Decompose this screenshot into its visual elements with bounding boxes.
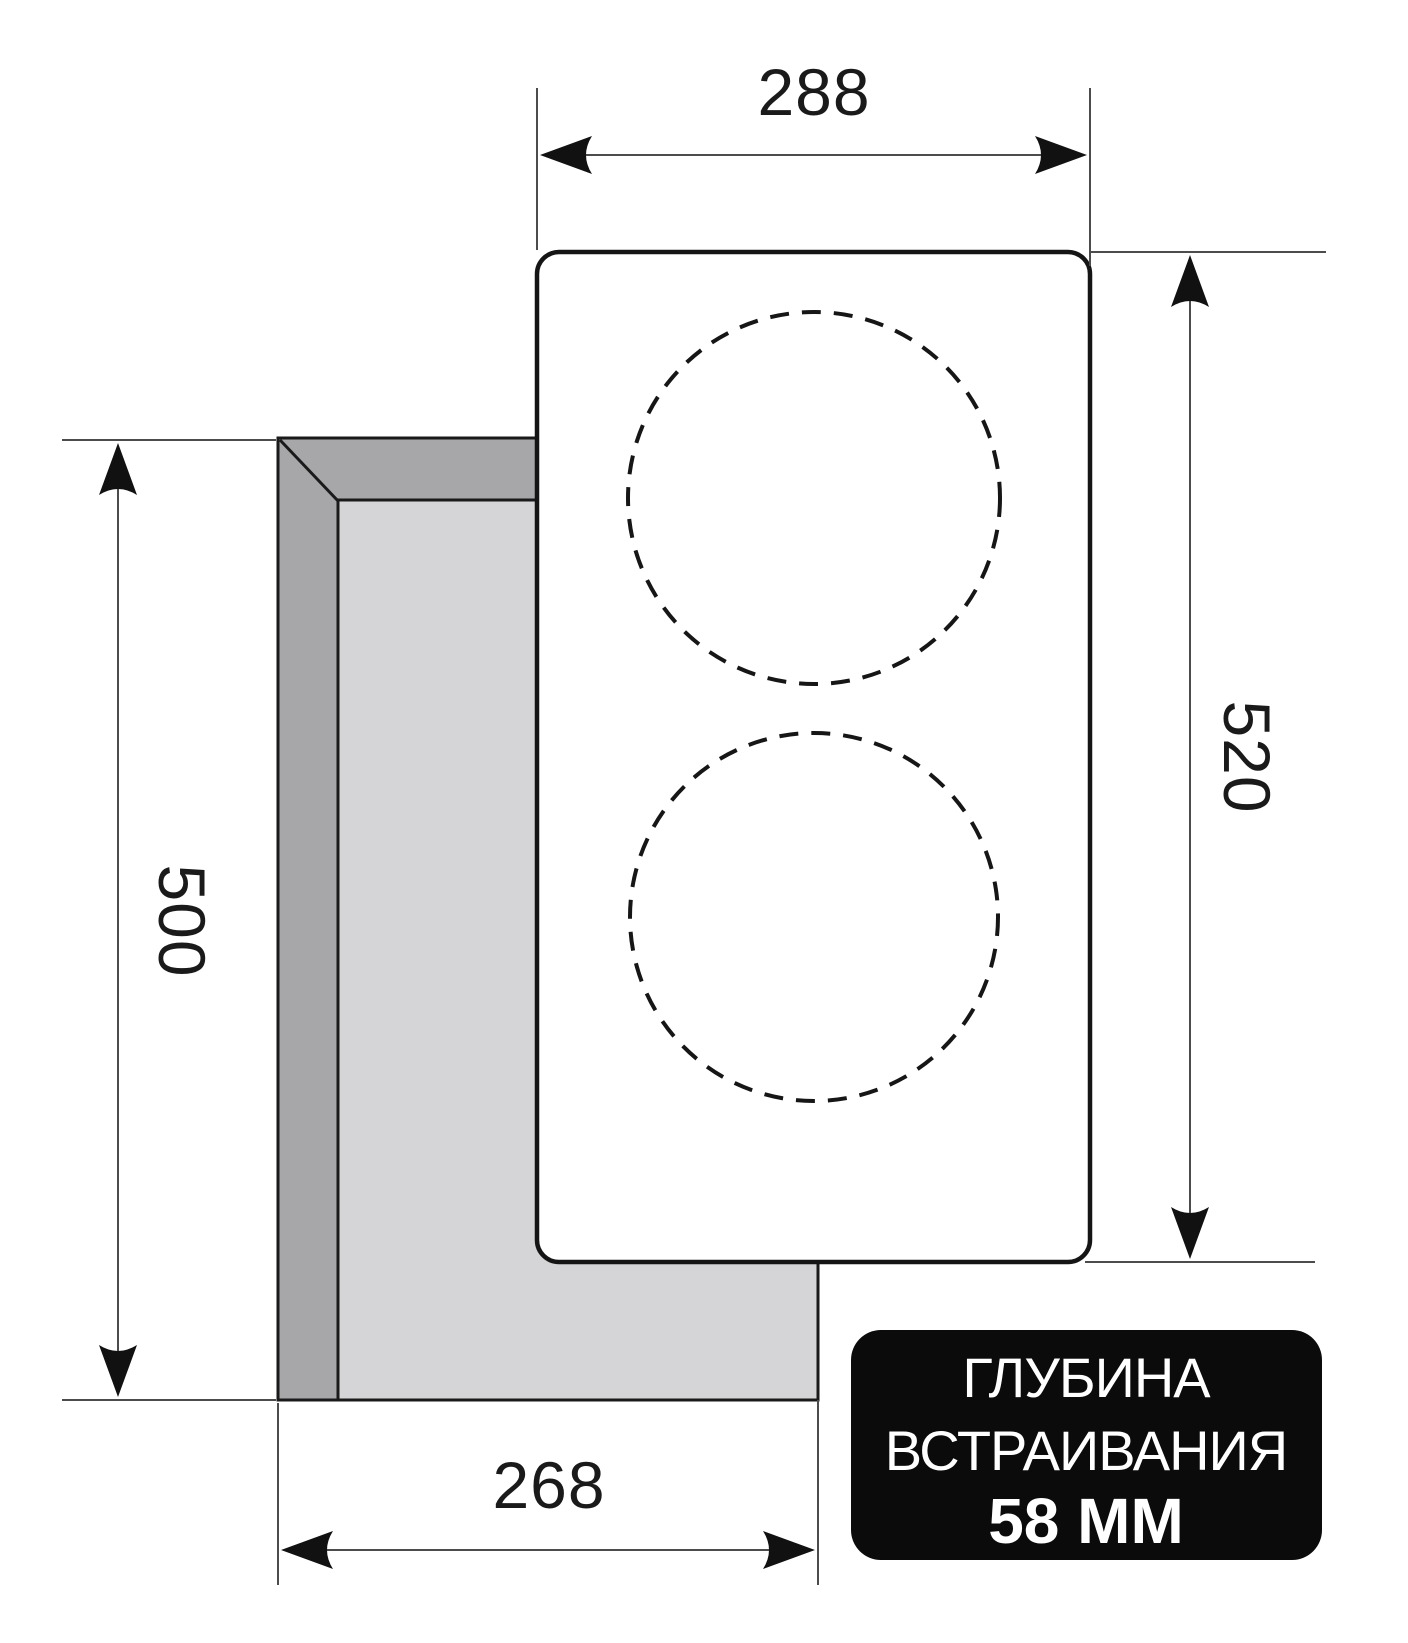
arrowhead-left-icon [540,136,592,174]
badge-line1: ГЛУБИНА [962,1346,1211,1409]
hob-installation-diagram: 288 520 500 268 [0,0,1408,1643]
arrowhead-down-icon [1171,1207,1209,1259]
hob-panel-outline [537,252,1090,1262]
panel-width-label: 288 [757,55,870,129]
arrowhead-right-icon [1035,136,1087,174]
cutout-height-label: 500 [145,864,219,977]
arrowhead-up-icon [99,443,137,495]
cutout-width-label: 268 [492,1448,605,1522]
dimension-panel-width: 288 [537,55,1090,266]
badge-line2: ВСТРАИВАНИЯ [885,1419,1287,1482]
badge-depth-value: 58 ММ [988,1485,1184,1557]
installation-depth-badge: ГЛУБИНА ВСТРАИВАНИЯ 58 ММ [851,1330,1322,1560]
arrowhead-down-icon [99,1345,137,1397]
arrowhead-up-icon [1171,255,1209,307]
dimension-cutout-height: 500 [62,440,276,1400]
hob-panel [537,252,1090,1262]
panel-height-label: 520 [1210,700,1284,813]
arrowhead-right-icon [763,1531,815,1569]
arrowhead-left-icon [281,1531,333,1569]
diagram-canvas: 288 520 500 268 [0,0,1408,1643]
dimension-panel-height: 520 [1085,252,1326,1262]
dimension-cutout-width: 268 [278,1400,818,1585]
